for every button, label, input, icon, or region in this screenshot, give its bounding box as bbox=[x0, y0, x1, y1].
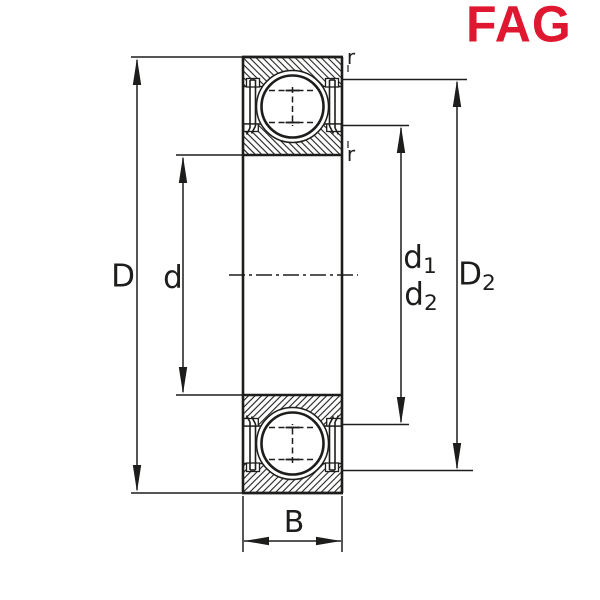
label-d2-base: d bbox=[404, 277, 424, 313]
fag-logo: FAG bbox=[466, 2, 596, 47]
label-d2: d2 bbox=[404, 280, 438, 315]
label-bore-diameter-d: d bbox=[163, 263, 183, 294]
label-D2-sub: 2 bbox=[482, 271, 496, 296]
label-width-B: B bbox=[284, 508, 305, 538]
label-outer-diameter-D: D bbox=[111, 262, 135, 293]
label-d1: d1 bbox=[403, 243, 437, 278]
bearing-section-bottom bbox=[242, 395, 343, 493]
label-d1-sub: 1 bbox=[423, 254, 437, 279]
label-D2: D2 bbox=[458, 260, 496, 295]
bearing-drawing-canvas: D d d1 d2 D2 B r r FAG bbox=[0, 0, 600, 600]
bearing-section-top bbox=[242, 57, 343, 155]
label-d2-sub: 2 bbox=[424, 291, 438, 316]
label-D2-base: D bbox=[458, 257, 482, 293]
label-d1-base: d bbox=[403, 240, 423, 276]
label-chamfer-r-top: r bbox=[347, 47, 355, 67]
label-chamfer-r-bottom: r bbox=[347, 144, 355, 164]
